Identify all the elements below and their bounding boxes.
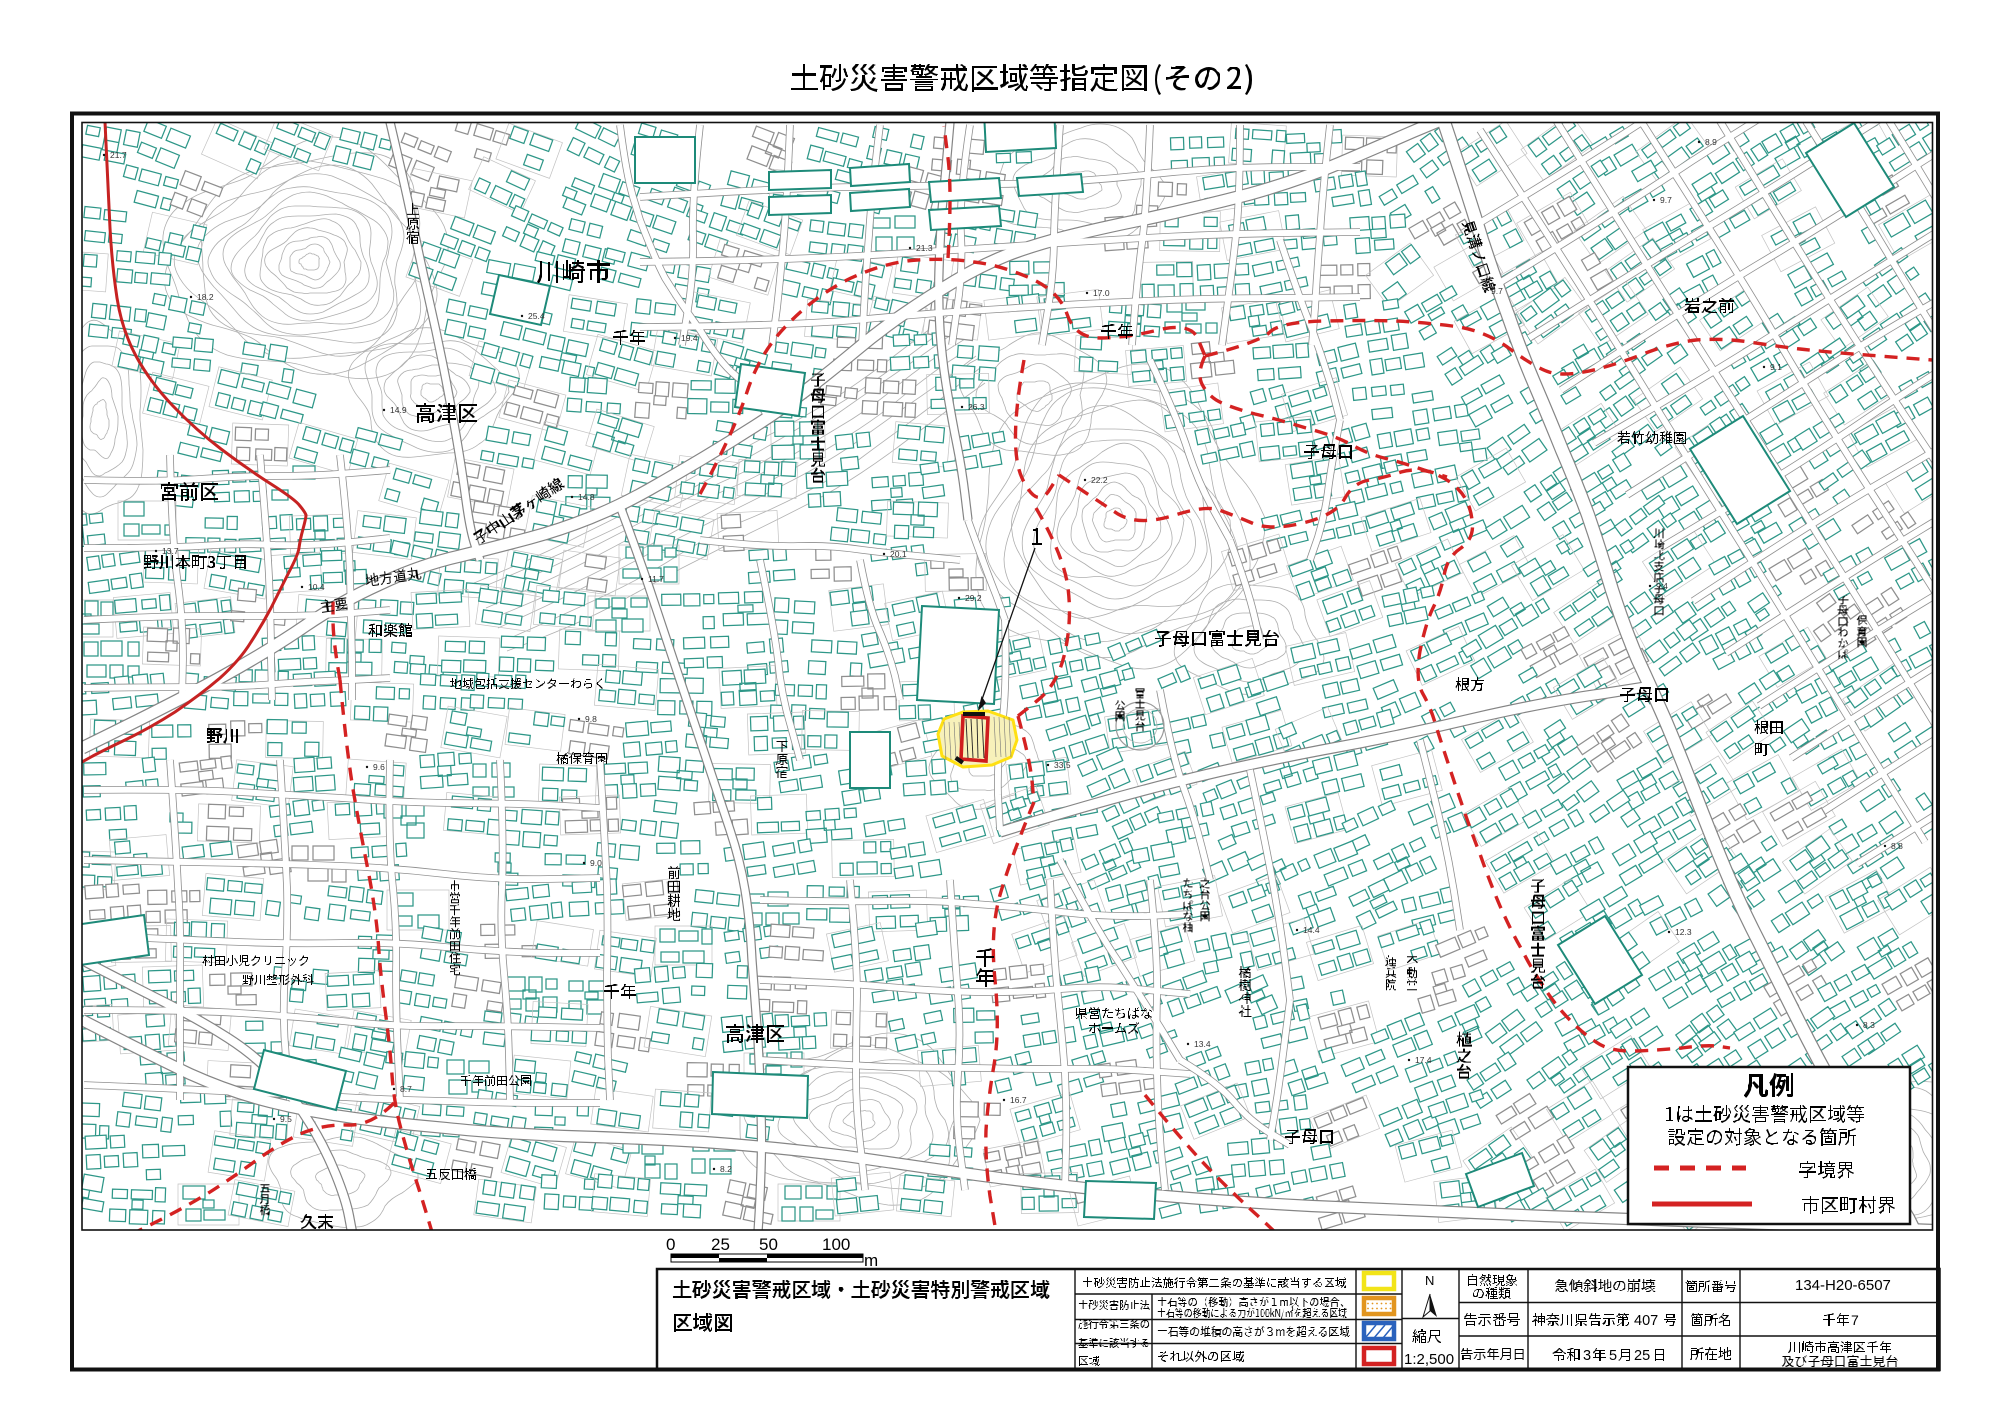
svg-text:N: N xyxy=(1425,1273,1434,1288)
svg-text:8.8: 8.8 xyxy=(1891,841,1903,851)
svg-text:9.0: 9.0 xyxy=(590,858,602,868)
svg-text:14.8: 14.8 xyxy=(578,492,595,502)
svg-text:8.9: 8.9 xyxy=(1705,137,1717,147)
svg-text:8.2: 8.2 xyxy=(720,1164,732,1174)
svg-text:33.5: 33.5 xyxy=(1054,760,1071,770)
svg-text:21.7: 21.7 xyxy=(110,150,127,160)
svg-text:9.5: 9.5 xyxy=(280,1114,292,1124)
svg-text:14.9: 14.9 xyxy=(390,405,407,415)
svg-text:9.8: 9.8 xyxy=(585,714,597,724)
svg-text:11.7: 11.7 xyxy=(648,574,664,584)
svg-text:25.4: 25.4 xyxy=(528,311,545,321)
svg-text:9.4: 9.4 xyxy=(1656,581,1668,591)
svg-text:25: 25 xyxy=(1634,1348,1650,1364)
svg-text:8.3: 8.3 xyxy=(1863,1020,1875,1030)
svg-text:m: m xyxy=(864,1251,878,1270)
svg-text:407: 407 xyxy=(1634,1313,1658,1329)
svg-text:22.2: 22.2 xyxy=(1091,475,1108,485)
svg-text:8.7: 8.7 xyxy=(400,1084,412,1094)
svg-text:17.4: 17.4 xyxy=(1415,1055,1432,1065)
svg-text:1:2,500: 1:2,500 xyxy=(1404,1351,1454,1368)
svg-text:0: 0 xyxy=(666,1235,675,1254)
svg-text:50: 50 xyxy=(759,1235,778,1254)
svg-text:5: 5 xyxy=(1609,1348,1617,1364)
svg-text:14.4: 14.4 xyxy=(1303,925,1320,935)
svg-text:9.1: 9.1 xyxy=(1770,362,1782,372)
svg-text:9.6: 9.6 xyxy=(373,762,385,772)
svg-text:29.2: 29.2 xyxy=(965,593,982,603)
svg-text:7: 7 xyxy=(1851,1312,1859,1328)
svg-text:10.4: 10.4 xyxy=(308,582,325,592)
svg-text:9.7: 9.7 xyxy=(1660,195,1672,205)
svg-text:18.2: 18.2 xyxy=(197,292,214,302)
svg-text:21.3: 21.3 xyxy=(916,243,933,253)
svg-text:25: 25 xyxy=(711,1235,730,1254)
svg-text:13.4: 13.4 xyxy=(1194,1039,1211,1049)
svg-text:16.7: 16.7 xyxy=(1010,1095,1027,1105)
svg-text:12.3: 12.3 xyxy=(1675,927,1692,937)
svg-text:20.1: 20.1 xyxy=(890,549,907,559)
svg-text:9.7: 9.7 xyxy=(1491,286,1503,296)
svg-text:17.0: 17.0 xyxy=(1093,288,1110,298)
svg-text:100: 100 xyxy=(822,1235,850,1254)
svg-text:19.4: 19.4 xyxy=(681,333,698,343)
svg-text:3: 3 xyxy=(1583,1348,1591,1364)
svg-text:13.7: 13.7 xyxy=(162,546,179,556)
svg-text:26.3: 26.3 xyxy=(968,402,985,412)
svg-text:134-H20-6507: 134-H20-6507 xyxy=(1795,1277,1891,1294)
